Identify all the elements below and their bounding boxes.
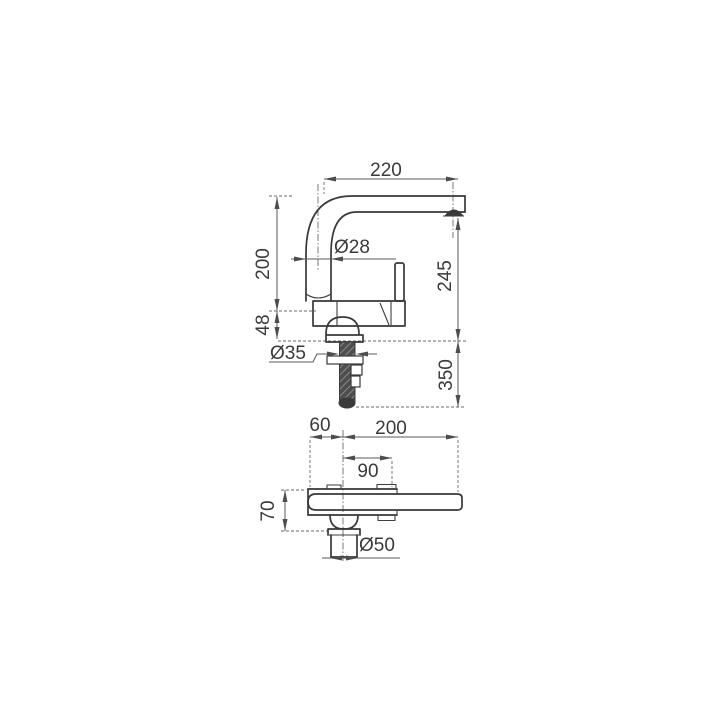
dim-handle-length: 90 (343, 456, 392, 483)
front-view: 220 200 48 Ø28 245 350 (253, 160, 467, 408)
dim-label-60: 60 (309, 415, 330, 436)
dim-label-o50: Ø50 (359, 535, 395, 556)
tube-joint (306, 294, 331, 298)
dim-label-o35: Ø35 (270, 343, 306, 364)
aerator (445, 210, 463, 216)
technical-drawing-page: 220 200 48 Ø28 245 350 (0, 0, 720, 720)
dim-label-o28: Ø28 (334, 237, 370, 258)
dim-label-350: 350 (436, 359, 457, 391)
dim-plan-offsets: 60 200 (309, 415, 458, 440)
dim-spout-reach: 220 (324, 160, 458, 182)
dim-outlet-height: 245 350 (435, 218, 461, 407)
plan-base-flange (328, 529, 360, 535)
dim-label-220: 220 (370, 160, 402, 181)
dim-spout-height: 200 48 (253, 197, 280, 339)
dim-label-200: 200 (253, 248, 274, 280)
handle-lever (395, 263, 404, 301)
dim-label-245: 245 (435, 260, 456, 292)
clamp-upper (351, 365, 362, 375)
hose-end (339, 398, 355, 408)
faucet-dimension-drawing: 220 200 48 Ø28 245 350 (0, 0, 720, 720)
dim-label-200-plan: 200 (375, 418, 407, 439)
plan-base-dome (330, 515, 358, 529)
dim-body-width: 70 (258, 490, 288, 531)
handle-cap-edge (380, 303, 389, 325)
dim-label-48: 48 (253, 314, 274, 335)
plan-view: 60 200 90 70 Ø50 (258, 415, 462, 561)
dim-label-70: 70 (258, 500, 279, 521)
clamp-lower (351, 376, 360, 387)
dim-label-90: 90 (357, 461, 378, 482)
plan-spout (308, 494, 462, 510)
plan-base-cylinder (331, 535, 357, 557)
mounting-nut (327, 356, 363, 364)
